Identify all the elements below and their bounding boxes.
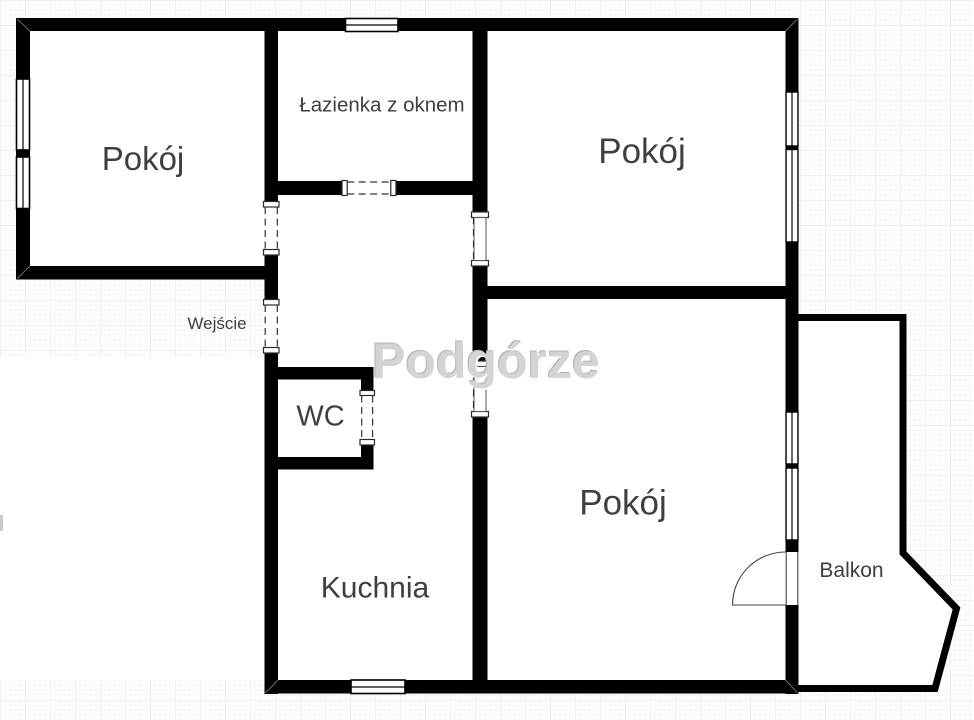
svg-text:Pokój: Pokój [598, 132, 686, 171]
svg-text:Wejście: Wejście [187, 314, 246, 333]
svg-text:Pokój: Pokój [102, 140, 185, 177]
svg-text:Pokój: Pokój [579, 484, 667, 523]
svg-text:WC: WC [296, 401, 344, 433]
svg-text:Balkon: Balkon [819, 559, 883, 582]
svg-text:Podgórze: Podgórze [372, 333, 600, 389]
svg-text:Łazienka z oknem: Łazienka z oknem [299, 94, 464, 117]
svg-text:Kuchnia: Kuchnia [321, 572, 430, 605]
